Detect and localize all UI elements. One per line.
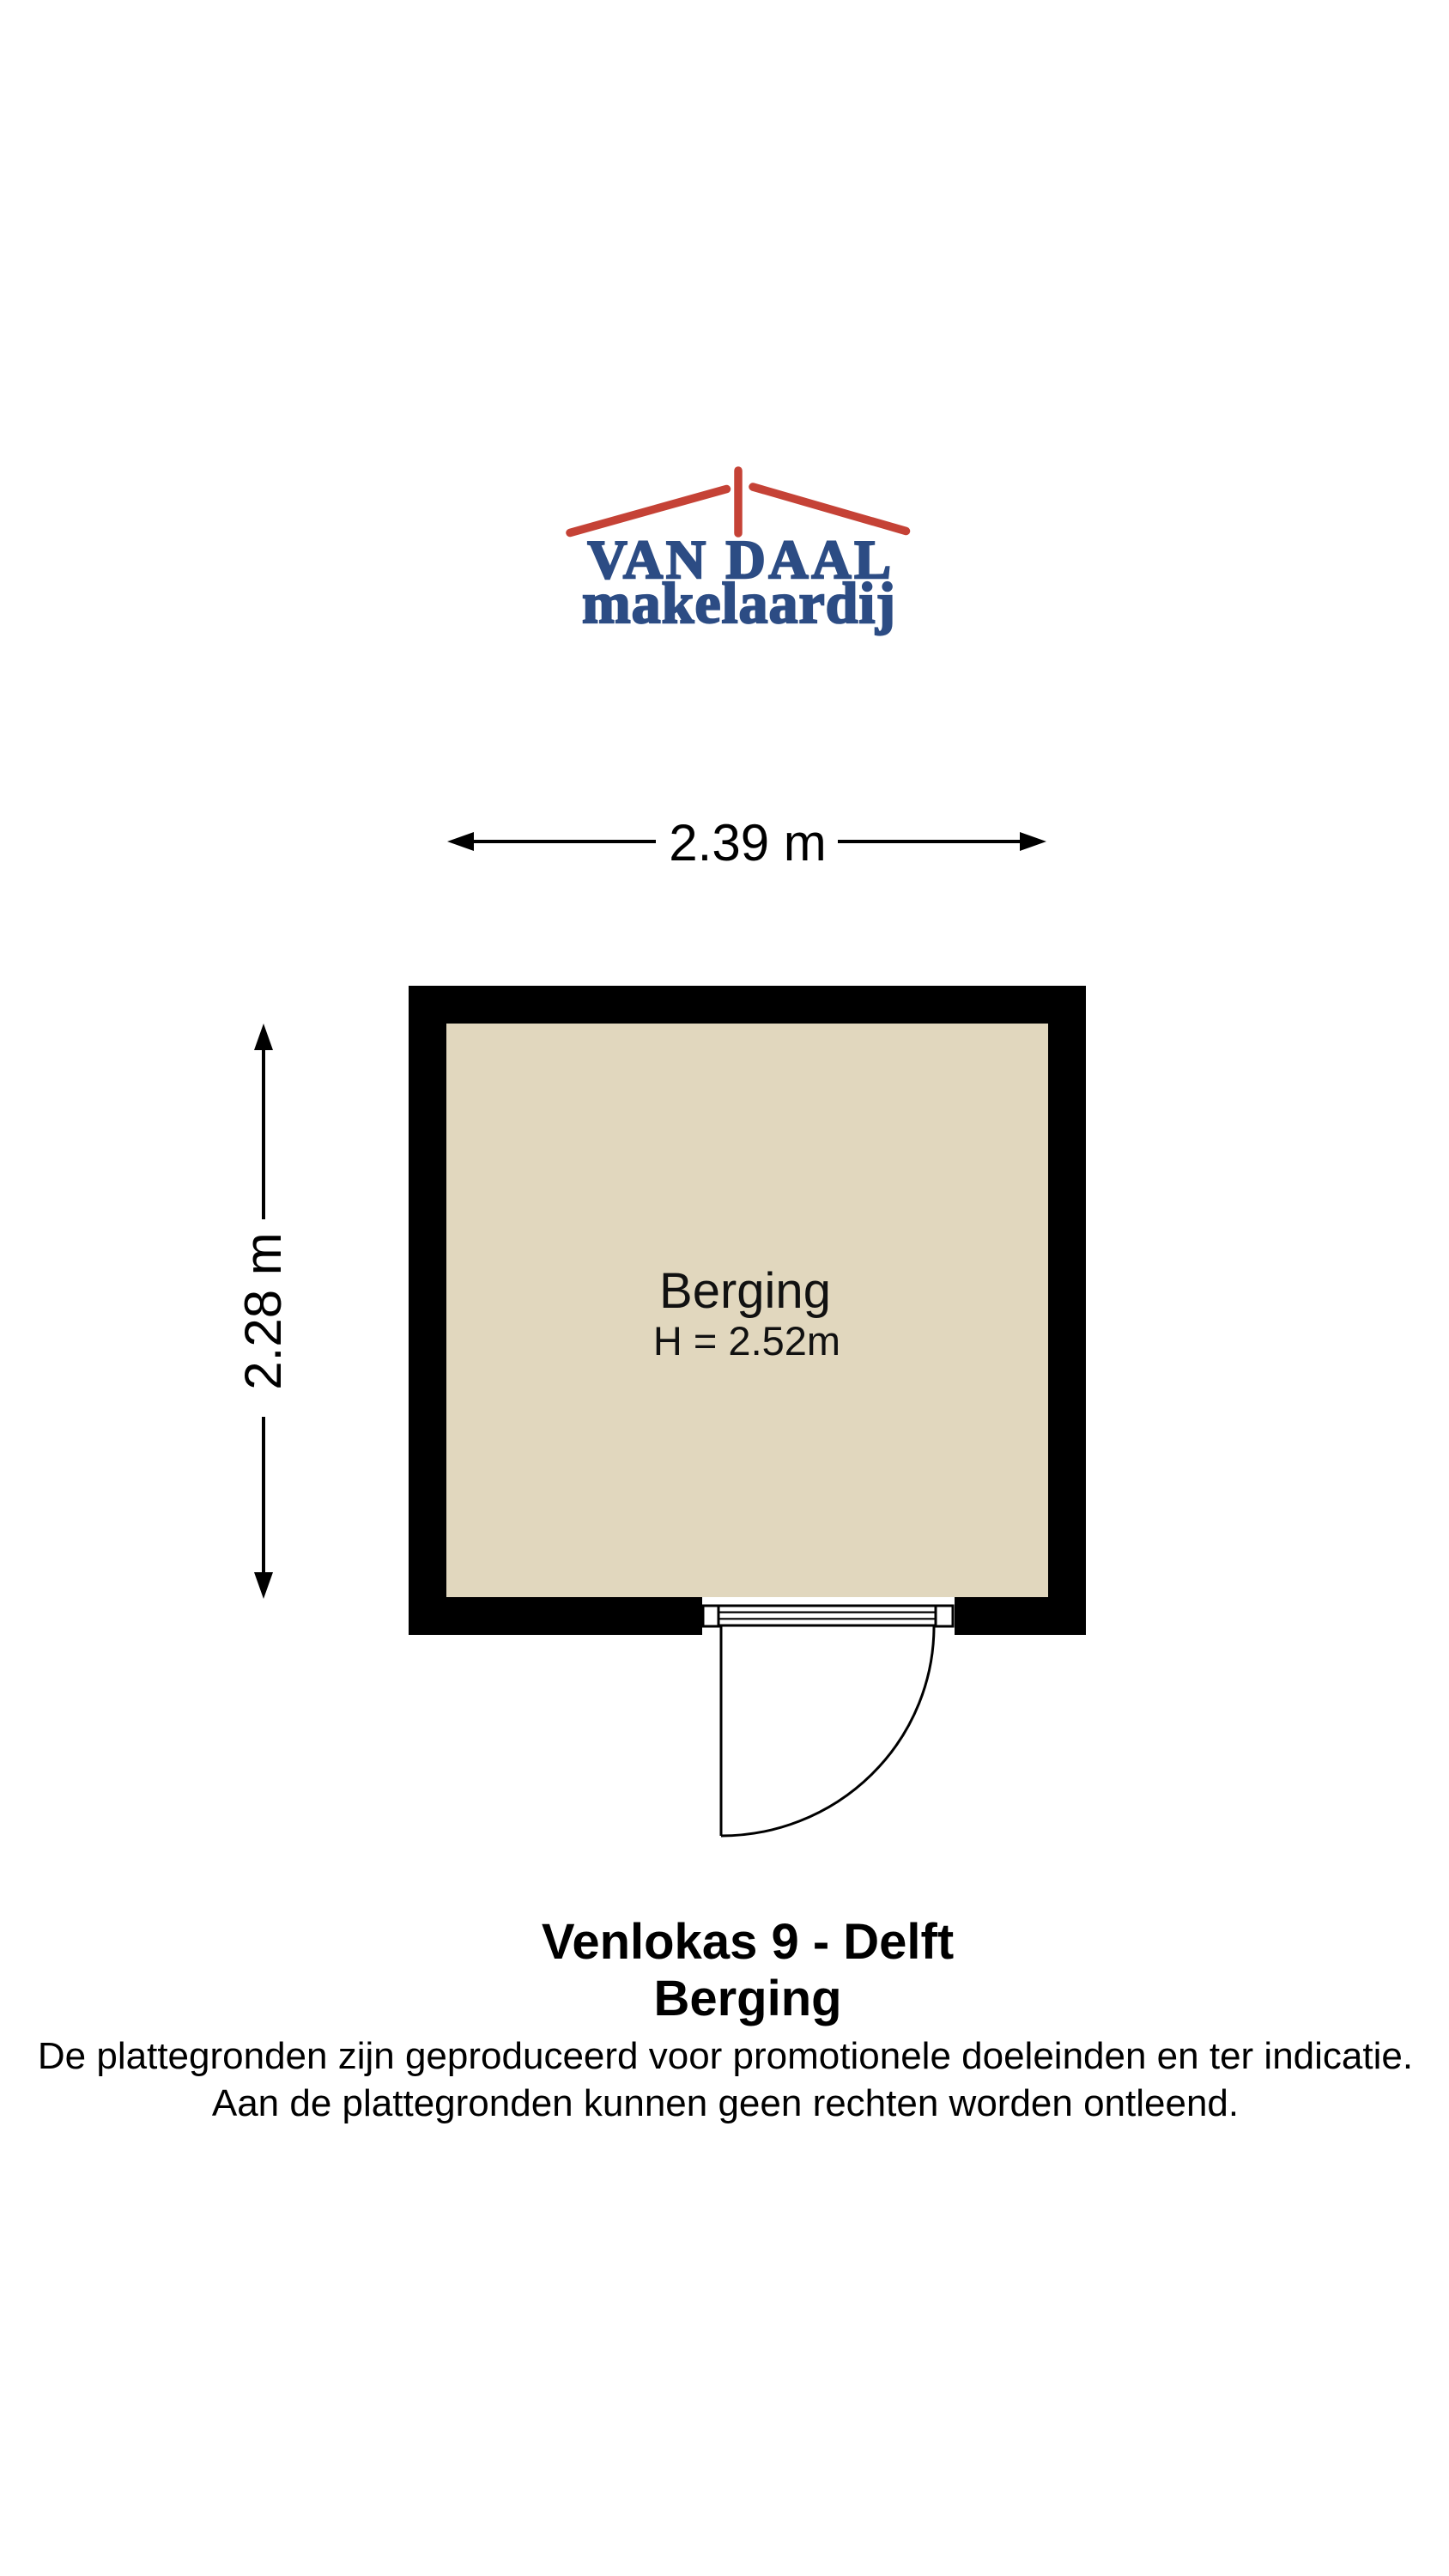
svg-text:2.28 m: 2.28 m [234,1232,292,1389]
svg-text:makelaardij: makelaardij [582,570,896,635]
svg-text:De plattegronden zijn geproduc: De plattegronden zijn geproduceerd voor … [38,2035,1413,2077]
svg-text:Venlokas 9 - Delft: Venlokas 9 - Delft [542,1914,954,1970]
svg-text:Berging: Berging [653,1971,841,2026]
svg-text:2.39 m: 2.39 m [669,814,826,872]
svg-text:H = 2.52m: H = 2.52m [653,1318,840,1364]
svg-text:Aan de plattegronden kunnen ge: Aan de plattegronden kunnen geen rechten… [212,2082,1239,2124]
svg-text:Berging: Berging [659,1263,831,1319]
